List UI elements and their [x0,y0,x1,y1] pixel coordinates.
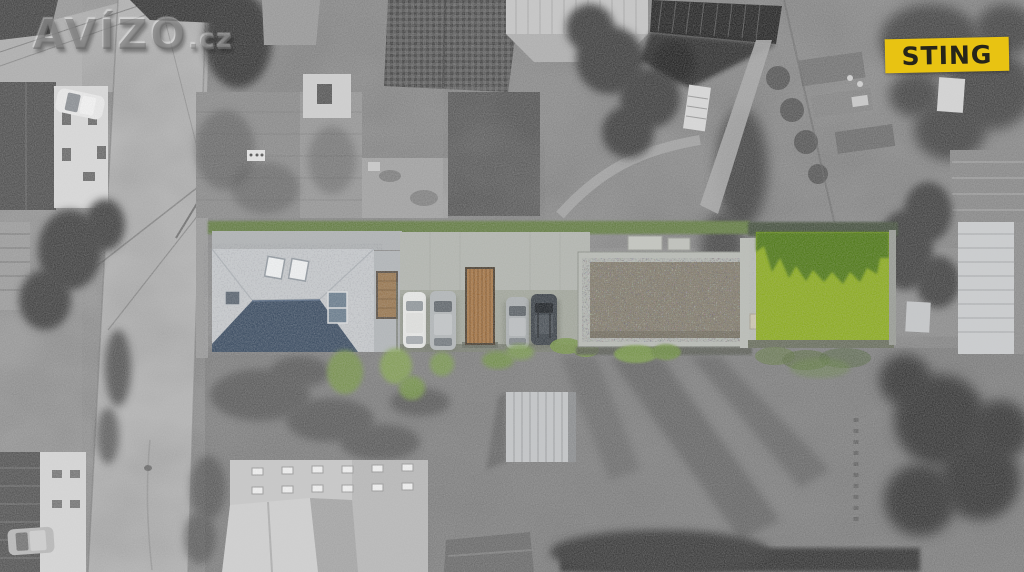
aerial-photo: AVÍZO.cz STING [0,0,1024,572]
watermark-avizo: AVÍZO.cz [33,15,234,56]
watermark-brand: AVÍZO [33,11,189,59]
sting-badge: STING [885,37,1010,74]
watermark-suffix: .cz [189,25,234,56]
film-grain [0,0,1024,572]
